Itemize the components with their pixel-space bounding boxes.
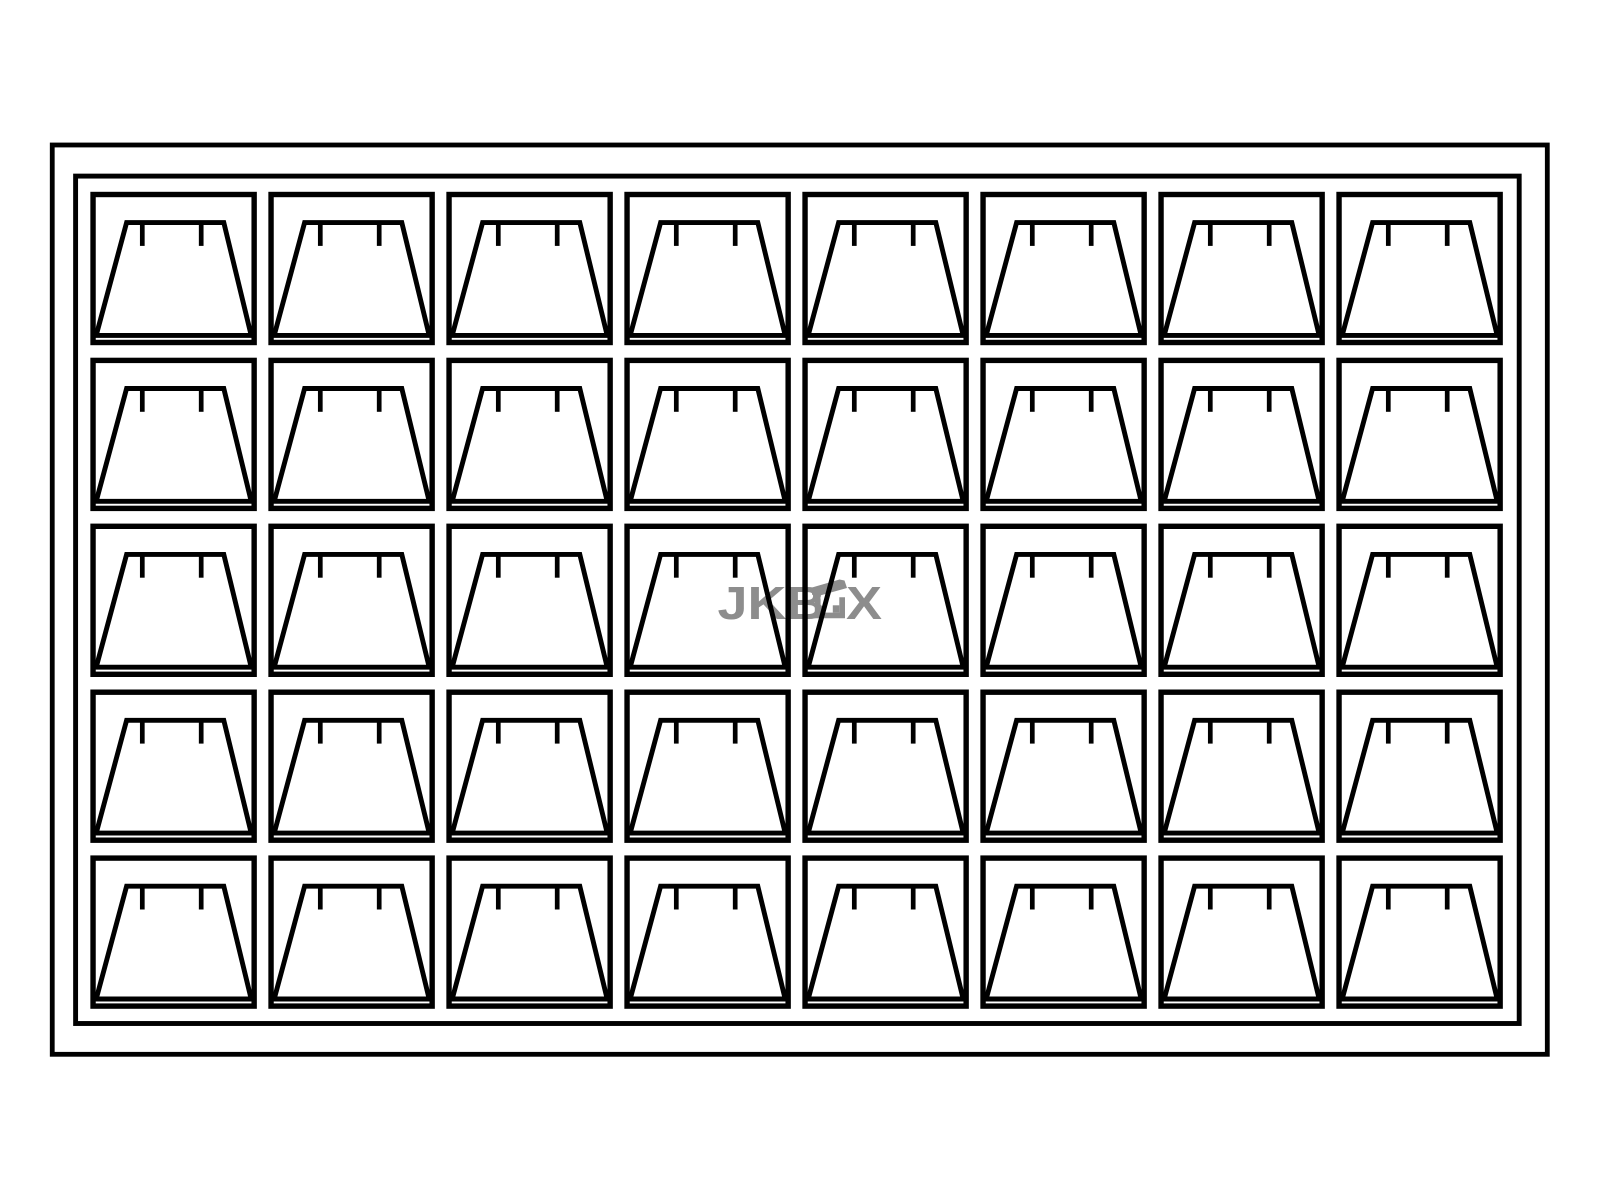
svg-text:X: X [846, 577, 882, 629]
